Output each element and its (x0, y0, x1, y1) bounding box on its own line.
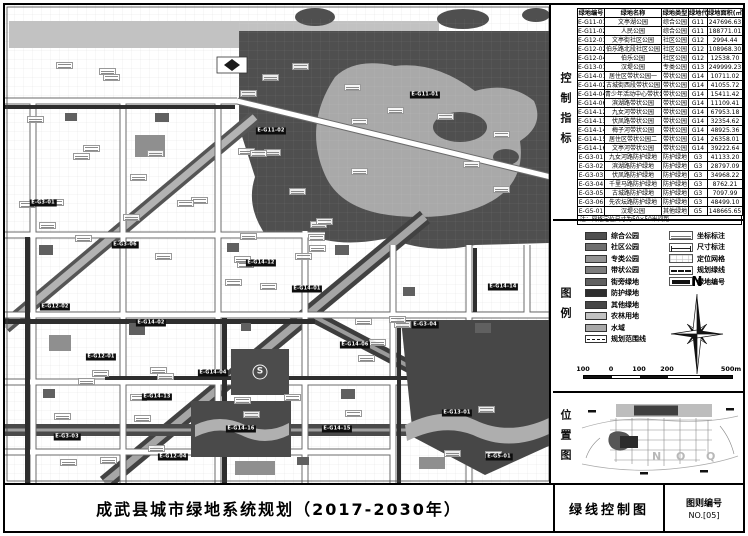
legend-item-label: 社区公园 (611, 242, 639, 252)
map-area: E-G11-01E-G11-02E-G3-01E-G3-06E-G14-12E-… (5, 5, 551, 483)
legend-swatch (585, 335, 607, 343)
scale-segments (583, 375, 733, 379)
coordinate-callout (147, 150, 164, 157)
coordinate-callout (295, 253, 312, 260)
coordinate-callout (344, 84, 361, 91)
table-cell: E-G12-04 (578, 54, 605, 63)
table-cell: 滨湖路带状公园 (605, 99, 662, 108)
green-space-code-badge: E-G14-04 (198, 370, 228, 377)
legend-section-label: 图例 (553, 223, 577, 391)
page-title: 成武县城市绿地系统规划（2017-2030年） (96, 496, 462, 520)
index-letter: N (652, 450, 661, 463)
table-cell: 39222.64 (708, 144, 743, 153)
green-space-code-badge: E-G14-13 (142, 394, 172, 401)
coordinate-callout (92, 370, 109, 377)
stadium-symbol: S (253, 365, 268, 380)
table-cell: E-G14-01 (578, 72, 605, 81)
table-cell: G3 (689, 189, 708, 198)
table-row: E-G14-06滨湖路带状公园带状公园G1411109.41 (578, 99, 743, 108)
table-row: E-G14-12九女河带状公园带状公园G1467953.18 (578, 108, 743, 117)
table-cell: 其他绿地 (662, 207, 689, 216)
green-space-code-badge: E-G14-15 (322, 426, 352, 433)
table-row: E-G14-13伏凤路带状公园带状公园G1432354.62 (578, 117, 743, 126)
scale-segment (584, 376, 612, 378)
green-space-code-badge: E-G3-04 (412, 322, 439, 329)
scale-segment (668, 376, 700, 378)
dim-symbol-icon (669, 243, 693, 252)
coordinate-callout (177, 200, 194, 207)
legend-item-label: 综合公园 (611, 231, 639, 241)
green-space-code-badge: E-G14-16 (226, 426, 256, 433)
table-cell: G14 (689, 135, 708, 144)
table-cell: 梅子河带状公园 (605, 126, 662, 135)
grid-symbol-icon (669, 254, 693, 263)
green-space-code-badge: E-G11-02 (256, 128, 286, 135)
green-space-code-badge: E-G5-01 (486, 454, 513, 461)
green-space-table: 绿地编号绿地名称绿地类型绿地代码绿地面积(㎡) E-G11-01文亭湖公园综合公… (577, 8, 743, 216)
table-cell: E-G3-02 (578, 162, 605, 171)
table-header-cell: 绿地代码 (689, 9, 708, 18)
sheet-name-cell: 绿线控制图 (555, 485, 665, 531)
table-cell: 防护绿地 (662, 189, 689, 198)
coordinate-callout (478, 406, 495, 413)
table-row: E-G14-02古城街西段带状公园带状公园G1441055.72 (578, 81, 743, 90)
table-cell: 居住区带状公园二 (605, 135, 662, 144)
table-cell: E-G3-06 (578, 198, 605, 207)
location-section-label: 位置图 (553, 395, 577, 483)
table-cell: G14 (689, 144, 708, 153)
table-cell: E-G14-14 (578, 126, 605, 135)
legend-symbol-label: 尺寸标注 (697, 242, 725, 252)
table-cell: G3 (689, 153, 708, 162)
table-cell: E-G14-13 (578, 117, 605, 126)
location-index-letters: NOQ (652, 450, 715, 463)
table-cell: 11109.41 (708, 99, 743, 108)
table-row: E-G11-02人民公园综合公园G11188771.01 (578, 27, 743, 36)
legend-item-label: 专类公园 (611, 254, 639, 264)
table-row: E-G3-01九女河路防护绿地防护绿地G341133.20 (578, 153, 743, 162)
table-cell: 2994.44 (708, 36, 743, 45)
coordinate-callout (260, 283, 277, 290)
green-space-code-badge: E-G3-03 (54, 434, 81, 441)
table-cell: 滨湖路防护绿地 (605, 162, 662, 171)
coordinate-callout (250, 150, 267, 157)
legend-symbol-label: 规划绿线 (697, 265, 725, 275)
scale-label: 0 (609, 365, 614, 373)
table-cell: 15411.42 (708, 90, 743, 99)
coordinate-callout (157, 373, 174, 380)
table-cell: E-G14-16 (578, 144, 605, 153)
table-cell: 48925.36 (708, 126, 743, 135)
table-cell: G13 (689, 63, 708, 72)
green-space-code-badge: E-G12-02 (40, 304, 70, 311)
coordinate-callout (355, 318, 372, 325)
coordinate-callout (292, 63, 309, 70)
table-cell: 带状公园 (662, 126, 689, 135)
legend-swatch-list: 综合公园社区公园专类公园带状公园街旁绿地防护绿地其他绿地农林用地水域规划范围线 (585, 230, 646, 345)
table-cell: E-G14-02 (578, 81, 605, 90)
legend-swatch (585, 255, 607, 263)
coordinate-callout (240, 233, 257, 240)
coordinate-callout (234, 397, 251, 404)
index-letter: Q (706, 450, 715, 463)
coordinate-callout (27, 116, 44, 123)
table-cell: E-G12-01 (578, 36, 605, 45)
table-cell: G14 (689, 72, 708, 81)
legend-item: 水域 (585, 322, 646, 334)
table-cell: G3 (689, 171, 708, 180)
table-cell: 文亭湖公园 (605, 18, 662, 27)
green-space-code-badge: E-G13-01 (442, 410, 472, 417)
table-cell: E-G11-01 (578, 18, 605, 27)
coordinate-callout (78, 378, 95, 385)
coordinate-callout (240, 90, 257, 97)
plan-sheet: E-G11-01E-G11-02E-G3-01E-G3-06E-G14-12E-… (3, 3, 745, 533)
table-cell: 26358.01 (708, 135, 743, 144)
table-cell: 41055.72 (708, 81, 743, 90)
legend-item-label: 防护绿地 (611, 288, 639, 298)
table-cell: 108968.30 (708, 45, 743, 54)
coordinate-callout (150, 367, 167, 374)
table-row: E-G14-04青少年活动中心带状公园带状公园G1415411.42 (578, 90, 743, 99)
coordinate-callout (309, 245, 326, 252)
legend-item: 其他绿地 (585, 299, 646, 311)
legend-item: 社区公园 (585, 242, 646, 254)
table-cell: 247696.63 (708, 18, 743, 27)
legend-item: 街旁绿地 (585, 276, 646, 288)
sheet-number-cell: 图则编号 NO.[05] (665, 485, 743, 531)
table-cell: G14 (689, 126, 708, 135)
table-cell: 10711.02 (708, 72, 743, 81)
table-cell: 社区公园 (662, 54, 689, 63)
table-cell: G3 (689, 162, 708, 171)
table-row: E-G14-14梅子河带状公园带状公园G1448925.36 (578, 126, 743, 135)
green-space-code-badge: E-G3-01 (30, 200, 57, 207)
table-cell: E-G14-06 (578, 99, 605, 108)
table-header-row: 绿地编号绿地名称绿地类型绿地代码绿地面积(㎡) (578, 9, 743, 18)
table-cell: 48499.10 (708, 198, 743, 207)
location-inset-map: NOQ (580, 398, 740, 480)
table-cell: 带状公园 (662, 144, 689, 153)
coordinate-callout (83, 145, 100, 152)
coordinate-callout (134, 415, 151, 422)
scale-segment (640, 376, 668, 378)
legend-item-label: 其他绿地 (611, 300, 639, 310)
table-cell: 综合公园 (662, 27, 689, 36)
table-cell: 34968.22 (708, 171, 743, 180)
table-cell: 古城路防护绿地 (605, 189, 662, 198)
legend-symbol-item: 坐标标注 (669, 230, 725, 242)
table-cell: G11 (689, 27, 708, 36)
legend-item-label: 农林用地 (611, 311, 639, 321)
table-cell: 社区公园 (662, 36, 689, 45)
table-cell: 带状公园 (662, 135, 689, 144)
table-cell: 带状公园 (662, 90, 689, 99)
green-space-code-badge: E-G3-06 (112, 242, 139, 249)
table-cell: 九女河路防护绿地 (605, 153, 662, 162)
green-space-code-badge: E-G12-01 (86, 354, 116, 361)
coordinate-callout (100, 457, 117, 464)
table-header-cell: 绿地类型 (662, 9, 689, 18)
legend-item: 带状公园 (585, 265, 646, 277)
table-cell: G14 (689, 99, 708, 108)
table-cell: G12 (689, 36, 708, 45)
legend-item: 综合公园 (585, 230, 646, 242)
table-row: E-G3-04千里马路防护绿地防护绿地G38762.21 (578, 180, 743, 189)
coordinate-callout (99, 68, 116, 75)
table-header-cell: 绿地名称 (605, 9, 662, 18)
table-cell: 防护绿地 (662, 171, 689, 180)
table-cell: 伏凤路防护绿地 (605, 171, 662, 180)
coordinate-callout (493, 186, 510, 193)
scale-segment (612, 376, 640, 378)
control-indicators-section: 控制指标 绿地编号绿地名称绿地类型绿地代码绿地面积(㎡) E-G11-01文亭湖… (553, 5, 743, 221)
table-cell: 188771.01 (708, 27, 743, 36)
legend-swatch (585, 301, 607, 309)
legend-swatch (585, 324, 607, 332)
coordinate-callout (369, 339, 386, 346)
table-cell: 文亭街社区公园 (605, 36, 662, 45)
right-panel: 控制指标 绿地编号绿地名称绿地类型绿地代码绿地面积(㎡) E-G11-01文亭湖… (553, 5, 743, 483)
legend-item: 农林用地 (585, 311, 646, 323)
table-row: E-G3-05古城路防护绿地防护绿地G37097.99 (578, 189, 743, 198)
table-cell: G14 (689, 108, 708, 117)
table-cell: 古城街西段带状公园 (605, 81, 662, 90)
coordinate-callout (316, 218, 333, 225)
coordinate-callout (225, 279, 242, 286)
table-cell: 社区公园 (662, 45, 689, 54)
north-label: N (692, 275, 703, 290)
coordinate-callout (345, 410, 362, 417)
sheet-name: 绿线控制图 (569, 499, 649, 518)
coordinate-callout (351, 118, 368, 125)
legend-item-label: 水域 (611, 323, 625, 333)
table-cell: E-G3-01 (578, 153, 605, 162)
table-row: E-G11-01文亭湖公园综合公园G11247696.63 (578, 18, 743, 27)
table-cell: 人民公园 (605, 27, 662, 36)
table-row: E-G5-01汉堤公园其他绿地G5148665.65 (578, 207, 743, 216)
legend-swatch (585, 232, 607, 240)
legend-symbol-label: 坐标标注 (697, 231, 725, 241)
table-cell: E-G11-02 (578, 27, 605, 36)
green-space-code-badge: E-G11-01 (410, 92, 440, 99)
table-cell: 8762.21 (708, 180, 743, 189)
legend-item: 规划范围线 (585, 334, 646, 346)
table-row: E-G3-06先农坛路防护绿地防护绿地G348499.10 (578, 198, 743, 207)
green-space-code-badge: E-G14-12 (246, 260, 276, 267)
legend-symbol-item: 尺寸标注 (669, 242, 725, 254)
coordinate-callout (243, 411, 260, 418)
table-cell: E-G14-15 (578, 135, 605, 144)
table-cell: G5 (689, 207, 708, 216)
table-header-cell: 绿地面积(㎡) (708, 9, 743, 18)
title-block: 成武县城市绿地系统规划（2017-2030年） 绿线控制图 图则编号 NO.[0… (5, 483, 743, 531)
table-cell: 伯乐路北段社区公园 (605, 45, 662, 54)
sheet-number-value: NO.[05] (689, 511, 720, 520)
north-arrow: N (669, 275, 725, 379)
control-section-label: 控制指标 (553, 5, 577, 219)
table-cell: 专类公园 (662, 63, 689, 72)
table-row: E-G14-15居住区带状公园二带状公园G1426358.01 (578, 135, 743, 144)
gline-symbol-icon (669, 266, 693, 275)
legend-item-label: 带状公园 (611, 265, 639, 275)
index-letter: O (676, 450, 685, 463)
legend-swatch (585, 278, 607, 286)
coordinate-callout (493, 131, 510, 138)
table-cell: 带状公园 (662, 117, 689, 126)
coordinate-callout (39, 222, 56, 229)
legend-item-label: 规划范围线 (611, 334, 646, 344)
table-cell: 千里马路防护绿地 (605, 180, 662, 189)
coordinate-callout (60, 459, 77, 466)
table-cell: G12 (689, 54, 708, 63)
table-cell: 先农坛路防护绿地 (605, 198, 662, 207)
coordinate-callout (284, 394, 301, 401)
table-cell: 青少年活动中心带状公园 (605, 90, 662, 99)
table-cell: 28797.09 (708, 162, 743, 171)
coordinate-callout (75, 235, 92, 242)
scale-segment (700, 376, 732, 378)
scale-labels: 1000100200500m (583, 365, 733, 373)
coordinate-callout (387, 107, 404, 114)
table-cell: 67953.18 (708, 108, 743, 117)
table-cell: G12 (689, 45, 708, 54)
table-cell: E-G5-01 (578, 207, 605, 216)
table-cell: E-G13-01 (578, 63, 605, 72)
table-row: E-G12-02伯乐路北段社区公园社区公园G12108968.30 (578, 45, 743, 54)
coordinate-callout (155, 253, 172, 260)
green-space-table-body: E-G11-01文亭湖公园综合公园G11247696.63E-G11-02人民公… (578, 18, 743, 216)
table-cell: 伯乐公园 (605, 54, 662, 63)
table-row: E-G14-01居住区带状公园一带状公园G1410711.02 (578, 72, 743, 81)
scale-bar: 1000100200500m (583, 365, 733, 383)
location-section: 位置图 NOQ (553, 395, 743, 483)
coordinate-callout (73, 153, 90, 160)
green-space-code-badge: E-G14-02 (136, 320, 166, 327)
table-cell: 带状公园 (662, 99, 689, 108)
table-cell: 伏凤路带状公园 (605, 117, 662, 126)
green-space-code-badge: E-G14-06 (340, 342, 370, 349)
coordinate-callout (308, 234, 325, 241)
legend-swatch (585, 243, 607, 251)
coordinate-callout (444, 450, 461, 457)
legend-symbol-label: 定位网格 (697, 254, 725, 264)
table-cell: E-G3-04 (578, 180, 605, 189)
legend-swatch (585, 266, 607, 274)
sheet-number-label: 图则编号 (686, 496, 722, 509)
table-cell: 148665.65 (708, 207, 743, 216)
scale-label: 200 (660, 365, 674, 373)
table-cell: 防护绿地 (662, 180, 689, 189)
legend-item-label: 街旁绿地 (611, 277, 639, 287)
title-cell: 成武县城市绿地系统规划（2017-2030年） (5, 485, 555, 531)
coordinate-callout (56, 62, 73, 69)
coordinate-callout (262, 74, 279, 81)
table-cell: G14 (689, 117, 708, 126)
table-cell: 7097.99 (708, 189, 743, 198)
table-row: E-G13-01汉堤公园专类公园G13249999.23 (578, 63, 743, 72)
table-cell: E-G3-05 (578, 189, 605, 198)
green-space-code-badge: E-G14-14 (488, 284, 518, 291)
coordinate-callout (54, 413, 71, 420)
legend-item: 专类公园 (585, 253, 646, 265)
table-cell: G14 (689, 81, 708, 90)
coord-symbol-icon (669, 231, 693, 240)
table-cell: G14 (689, 90, 708, 99)
table-cell: 32354.62 (708, 117, 743, 126)
scale-label: 100 (632, 365, 646, 373)
coordinate-callout (389, 316, 406, 323)
table-row: E-G12-04伯乐公园社区公园G1212538.70 (578, 54, 743, 63)
table-cell: 12538.70 (708, 54, 743, 63)
scale-label: 100 (576, 365, 590, 373)
coordinate-callout (351, 168, 368, 175)
legend-swatch (585, 312, 607, 320)
table-cell: 防护绿地 (662, 198, 689, 207)
table-cell: E-G12-02 (578, 45, 605, 54)
table-row: E-G12-01文亭街社区公园社区公园G122994.44 (578, 36, 743, 45)
table-cell: 带状公园 (662, 108, 689, 117)
legend-swatch (585, 289, 607, 297)
coordinate-callout (358, 355, 375, 362)
coordinate-callout (130, 174, 147, 181)
table-cell: 综合公园 (662, 18, 689, 27)
table-cell: 防护绿地 (662, 162, 689, 171)
table-cell: 41133.20 (708, 153, 743, 162)
table-cell: E-G14-04 (578, 90, 605, 99)
table-cell: G3 (689, 198, 708, 207)
table-cell: G11 (689, 18, 708, 27)
table-cell: 九女河带状公园 (605, 108, 662, 117)
table-cell: 文亭河带状公园 (605, 144, 662, 153)
legend-item: 防护绿地 (585, 288, 646, 300)
legend-symbol-item: 定位网格 (669, 253, 725, 265)
table-cell: 249999.23 (708, 63, 743, 72)
coordinate-callout (148, 445, 165, 452)
table-cell: G3 (689, 180, 708, 189)
table-row: E-G3-02滨湖路防护绿地防护绿地G328797.09 (578, 162, 743, 171)
coordinate-callout (289, 188, 306, 195)
table-cell: E-G14-12 (578, 108, 605, 117)
scale-label: 500m (721, 365, 741, 373)
table-cell: 汉堤公园 (605, 63, 662, 72)
table-header-cell: 绿地编号 (578, 9, 605, 18)
table-cell: E-G3-03 (578, 171, 605, 180)
table-row: E-G14-16文亭河带状公园带状公园G1439222.64 (578, 144, 743, 153)
coordinate-callout (123, 214, 140, 221)
legend-section: 图例 综合公园社区公园专类公园带状公园街旁绿地防护绿地其他绿地农林用地水域规划范… (553, 223, 743, 393)
table-cell: 防护绿地 (662, 153, 689, 162)
table-row: E-G3-03伏凤路防护绿地防护绿地G334968.22 (578, 171, 743, 180)
table-cell: 居住区带状公园一 (605, 72, 662, 81)
coordinate-callout (437, 113, 454, 120)
interchange-symbol (217, 57, 247, 73)
coordinate-callout (463, 161, 480, 168)
table-cell: 带状公园 (662, 81, 689, 90)
green-space-code-badge: E-G12-04 (158, 454, 188, 461)
table-cell: 带状公园 (662, 72, 689, 81)
table-cell: 汉堤公园 (605, 207, 662, 216)
green-space-code-badge: E-G14-01 (292, 286, 322, 293)
